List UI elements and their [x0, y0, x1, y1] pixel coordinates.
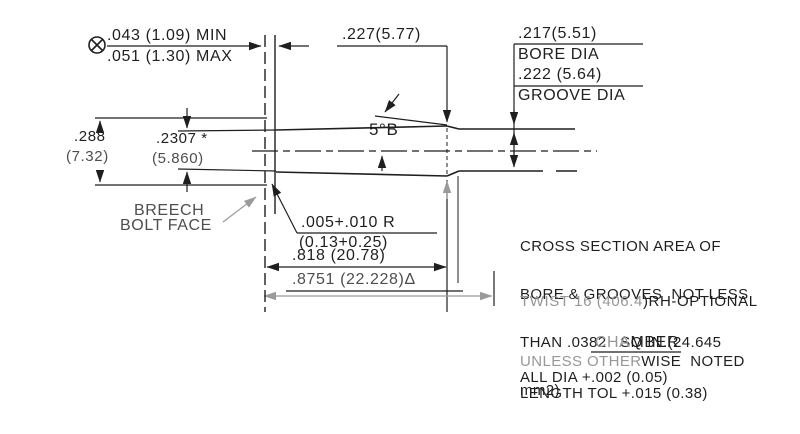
note-unless-otherwise: UNLESS OTHERWISE NOTED — [520, 354, 745, 370]
dim-groove-dia: .222 (5.64) — [518, 67, 602, 84]
dim-case-length: .818 (20.78) — [292, 248, 385, 265]
dim-mouth-dia: .227(5.77) — [342, 27, 421, 44]
note-twist: TWIST 16 (406.4)RH-OPTIONAL — [520, 294, 758, 310]
note-length-tolerance: LENGTH TOL +.015 (0.38) — [520, 386, 708, 402]
dim-headspace-max: .051 (1.30) MAX — [107, 49, 233, 66]
dim-headspace-min: .043 (1.09) MIN — [107, 28, 227, 45]
dim-rim-dia-in: .288 — [74, 129, 106, 145]
note-unless-light: UNLESS OTHER — [520, 353, 641, 370]
circled-x-icon — [89, 37, 105, 53]
note-twist-light: TWIST 16 (406.4 — [520, 293, 643, 310]
label-breech-2: BOLT FACE — [120, 218, 212, 235]
note-unless-dark: WISE NOTED — [641, 353, 745, 370]
label-bore-dia: BORE DIA — [518, 47, 599, 64]
chamber-drawing-sheet: .043 (1.09) MIN .051 (1.30) MAX .227(5.7… — [0, 0, 800, 434]
label-groove-dia: GROOVE DIA — [518, 88, 625, 105]
dim-radius-in: .005+.010 R — [301, 215, 395, 232]
dim-chamber-length: .8751 (22.228)Δ — [292, 272, 416, 289]
label-taper-angle: 5°B — [369, 121, 398, 139]
title-chamber: CHAMBER — [592, 335, 682, 352]
title-chamber-dark: MBER — [630, 334, 679, 351]
note-twist-dark: )RH-OPTIONAL — [643, 293, 758, 310]
note-dia-tolerance: ALL DIA +.002 (0.05) — [520, 370, 668, 386]
dim-base-dia-in: .2307 * — [156, 131, 208, 147]
dim-base-dia-mm: (5.860) — [152, 151, 204, 167]
dim-rim-dia-mm: (7.32) — [66, 149, 109, 165]
dim-bore-dia: .217(5.51) — [518, 26, 597, 43]
note-cross-section-line1: CROSS SECTION AREA OF — [520, 239, 749, 255]
title-chamber-light: CHA — [595, 334, 631, 351]
